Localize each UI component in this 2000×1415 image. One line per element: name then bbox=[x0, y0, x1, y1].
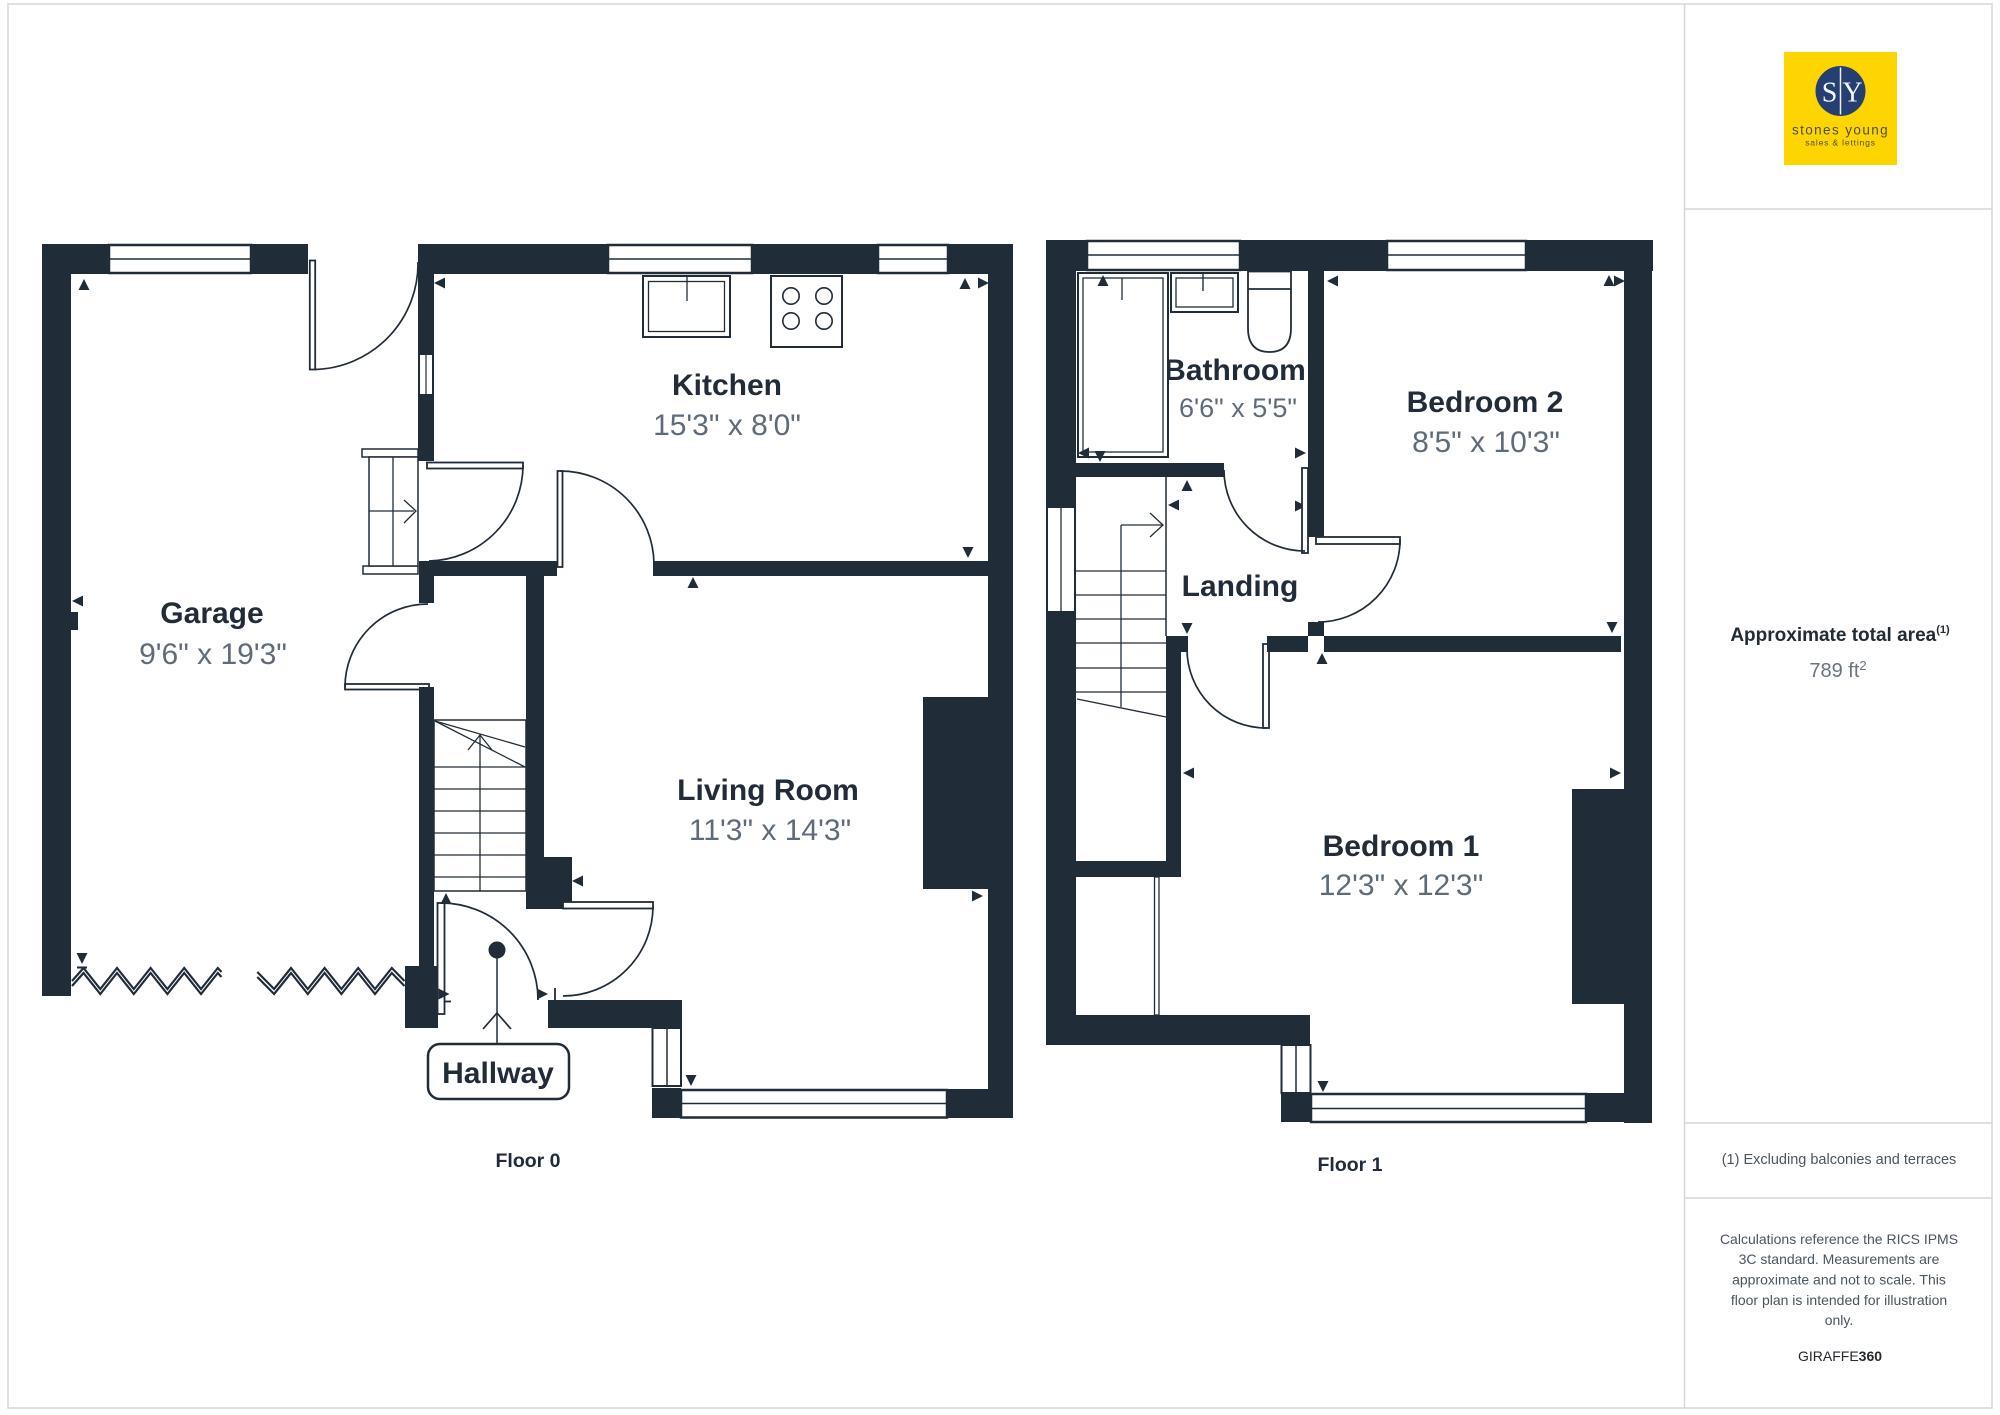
svg-text:9'6" x 19'3": 9'6" x 19'3" bbox=[139, 638, 287, 671]
svg-text:Bedroom 1: Bedroom 1 bbox=[1323, 830, 1480, 863]
svg-text:Calculations reference the RIC: Calculations reference the RICS IPMS bbox=[1720, 1231, 1958, 1247]
svg-text:11'3" x 14'3": 11'3" x 14'3" bbox=[689, 814, 851, 847]
svg-text:Y: Y bbox=[1842, 78, 1862, 109]
svg-text:sales & lettings: sales & lettings bbox=[1805, 138, 1876, 148]
svg-text:Garage: Garage bbox=[160, 597, 263, 630]
svg-text:floor plan is intended for ill: floor plan is intended for illustration bbox=[1731, 1292, 1947, 1308]
svg-text:Kitchen: Kitchen bbox=[672, 369, 782, 402]
svg-text:GIRAFFE360: GIRAFFE360 bbox=[1798, 1348, 1882, 1364]
svg-text:6'6" x 5'5": 6'6" x 5'5" bbox=[1179, 393, 1297, 423]
svg-text:Living Room: Living Room bbox=[677, 774, 859, 807]
svg-text:Floor 1: Floor 1 bbox=[1317, 1154, 1382, 1176]
svg-text:3C standard. Measurements are: 3C standard. Measurements are bbox=[1739, 1251, 1940, 1267]
svg-text:only.: only. bbox=[1825, 1312, 1854, 1328]
svg-text:S: S bbox=[1822, 78, 1838, 109]
svg-text:Landing: Landing bbox=[1182, 570, 1299, 603]
svg-text:15'3" x 8'0": 15'3" x 8'0" bbox=[653, 409, 801, 442]
svg-text:12'3" x 12'3": 12'3" x 12'3" bbox=[1319, 869, 1484, 902]
svg-text:Hallway: Hallway bbox=[442, 1057, 554, 1090]
svg-text:Floor 0: Floor 0 bbox=[495, 1150, 560, 1172]
svg-text:Bathroom: Bathroom bbox=[1164, 354, 1306, 387]
svg-text:Bedroom 2: Bedroom 2 bbox=[1407, 386, 1564, 419]
svg-text:approximate and not to scale.: approximate and not to scale. This bbox=[1732, 1272, 1946, 1288]
svg-text:(1) Excluding balconies and te: (1) Excluding balconies and terraces bbox=[1722, 1152, 1957, 1168]
svg-text:stones young: stones young bbox=[1792, 123, 1889, 138]
svg-text:Approximate total area(1): Approximate total area(1) bbox=[1730, 624, 1950, 646]
svg-text:8'5" x 10'3": 8'5" x 10'3" bbox=[1412, 426, 1560, 459]
svg-text:789 ft2: 789 ft2 bbox=[1809, 658, 1866, 682]
